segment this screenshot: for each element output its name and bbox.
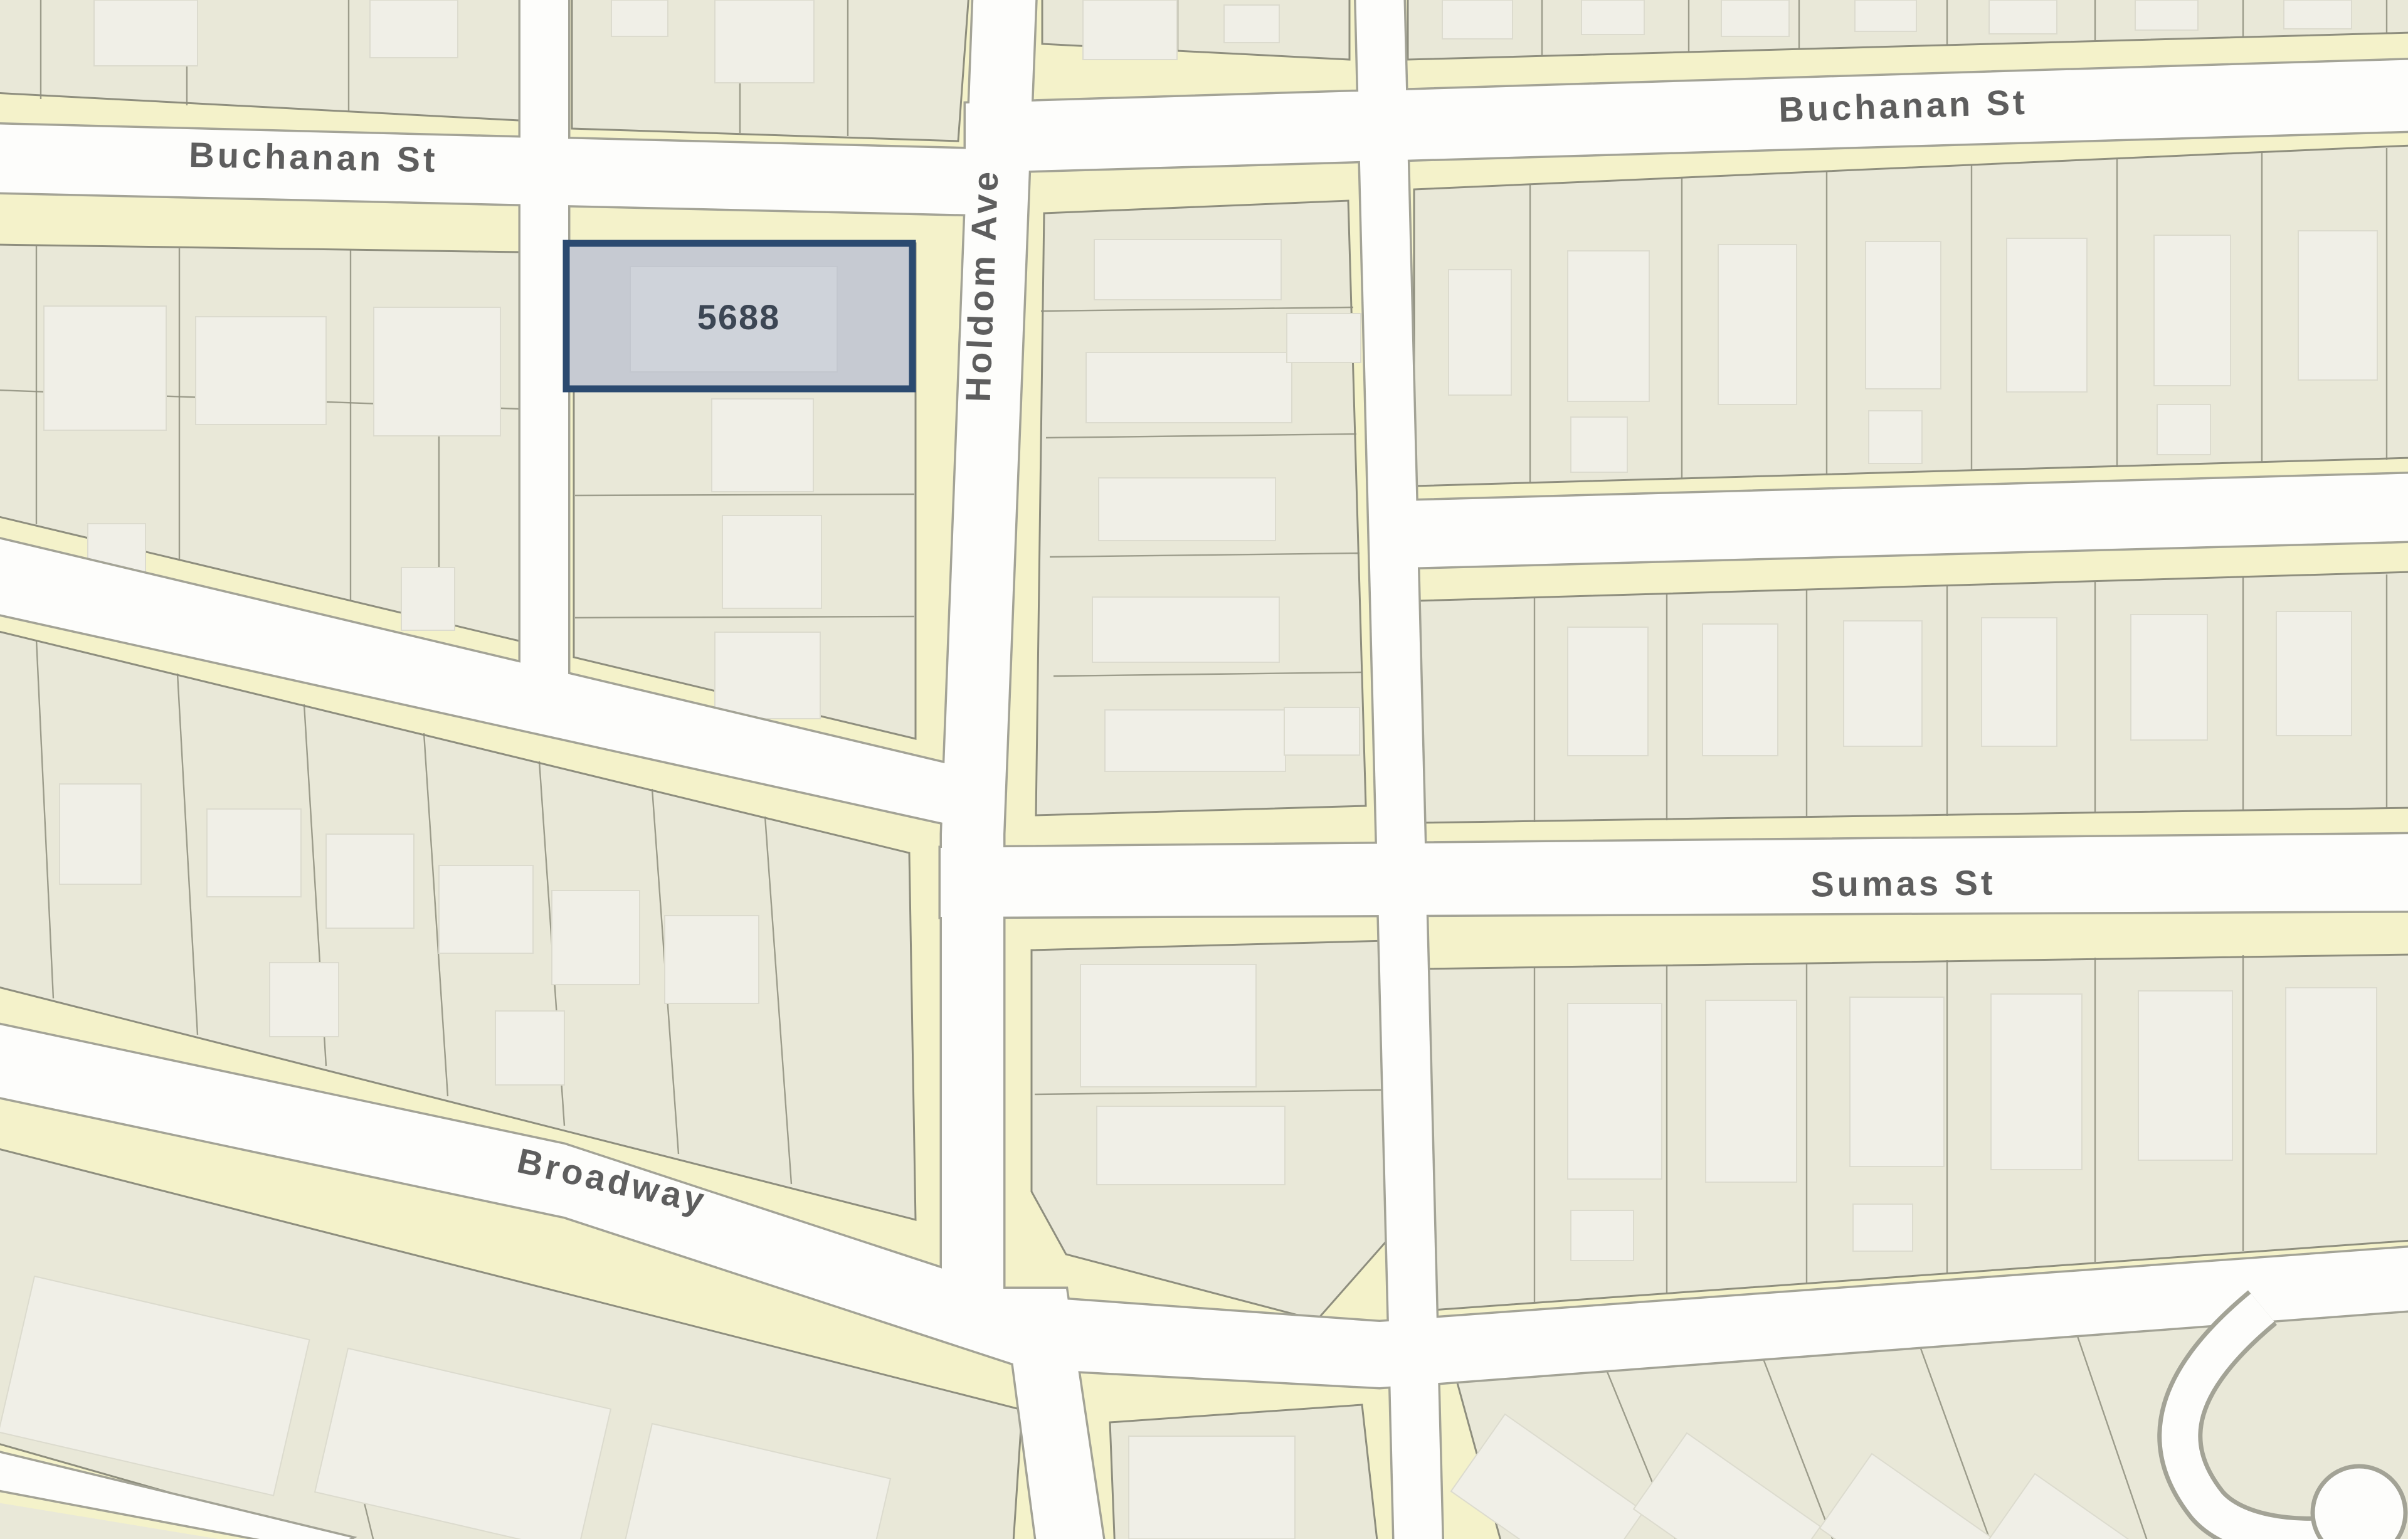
street-label-buchanan-west: Buchanan St [189,135,438,179]
highlighted-parcel-5688[interactable]: 5688 [566,243,912,389]
block-n-above-buchanan [572,0,969,141]
block-east-of-holdom [1036,201,1366,815]
block-ne-upper [1414,145,2408,486]
street-label-sumas-st: Sumas St [1810,862,1996,904]
street-label-buchanan-east: Buchanan St [1778,82,2028,129]
map-canvas[interactable]: 5688 Buchanan St Buchanan St Holdom Ave … [0,0,2408,1539]
block-ne-strip-west [1042,0,1349,60]
block-ne-lower [1418,572,2408,823]
street-label-holdom-ave: Holdom Ave [958,168,1006,403]
parcel-number-label: 5688 [697,297,781,337]
block-s-mid-below-broadway [1110,1405,1378,1539]
map-window: 5688 Buchanan St Buchanan St Holdom Ave … [0,0,2408,1539]
